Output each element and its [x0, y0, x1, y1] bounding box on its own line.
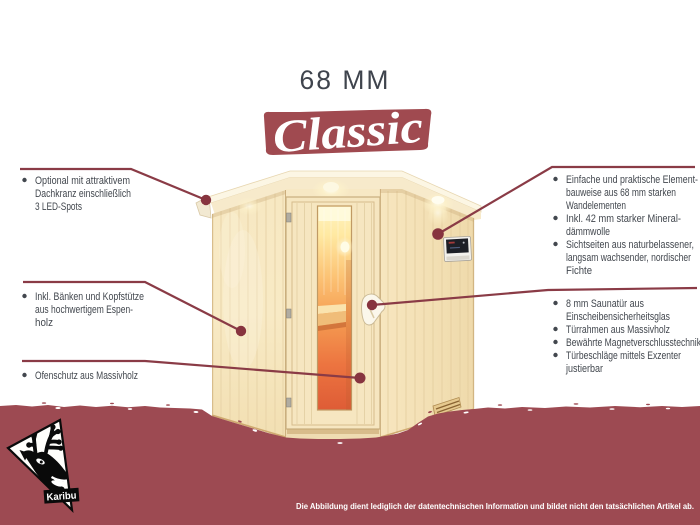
svg-text:Die Abbildung dient lediglich: Die Abbildung dient lediglich der datent…	[296, 502, 694, 511]
svg-text:Dachkranz einschließlich: Dachkranz einschließlich	[35, 188, 131, 200]
svg-text:langsam wachsender, nordischer: langsam wachsender, nordischer	[566, 252, 691, 264]
svg-text:Karibu: Karibu	[46, 490, 77, 503]
svg-text:Einfache und praktische Elemen: Einfache und praktische Element-	[566, 174, 698, 186]
svg-text:aus hochwertigem Espen-: aus hochwertigem Espen-	[35, 304, 133, 316]
svg-text:8 mm Saunatür aus: 8 mm Saunatür aus	[566, 298, 644, 310]
svg-text:Optional mit attraktivem: Optional mit attraktivem	[35, 175, 130, 187]
svg-text:Ofenschutz aus Massivholz: Ofenschutz aus Massivholz	[35, 370, 138, 382]
svg-text:Fichte: Fichte	[566, 265, 592, 277]
svg-text:3 LED-Spots: 3 LED-Spots	[35, 201, 82, 213]
svg-text:Sichtseiten aus naturbelassene: Sichtseiten aus naturbelassener,	[566, 239, 694, 251]
svg-text:Classic: Classic	[271, 101, 424, 162]
svg-text:Einscheibensicherheitsglas: Einscheibensicherheitsglas	[566, 311, 670, 323]
svg-text:holz: holz	[35, 317, 53, 329]
svg-text:dämmwolle: dämmwolle	[566, 226, 610, 238]
svg-text:Inkl. Bänken und Kopfstütze: Inkl. Bänken und Kopfstütze	[35, 291, 144, 303]
svg-text:Türbeschläge mittels Exzenter: Türbeschläge mittels Exzenter	[566, 350, 681, 362]
svg-text:justierbar: justierbar	[565, 363, 603, 375]
svg-text:Wandelementen: Wandelementen	[566, 200, 626, 212]
svg-text:Türrahmen aus Massivholz: Türrahmen aus Massivholz	[566, 324, 670, 336]
svg-text:Bewährte Magnetverschlusstechn: Bewährte Magnetverschlusstechnik	[566, 337, 700, 349]
svg-text:bauweise aus 68 mm starken: bauweise aus 68 mm starken	[566, 187, 676, 199]
svg-text:68 MM: 68 MM	[300, 65, 391, 95]
svg-text:Inkl. 42 mm starker Mineral-: Inkl. 42 mm starker Mineral-	[566, 213, 681, 225]
